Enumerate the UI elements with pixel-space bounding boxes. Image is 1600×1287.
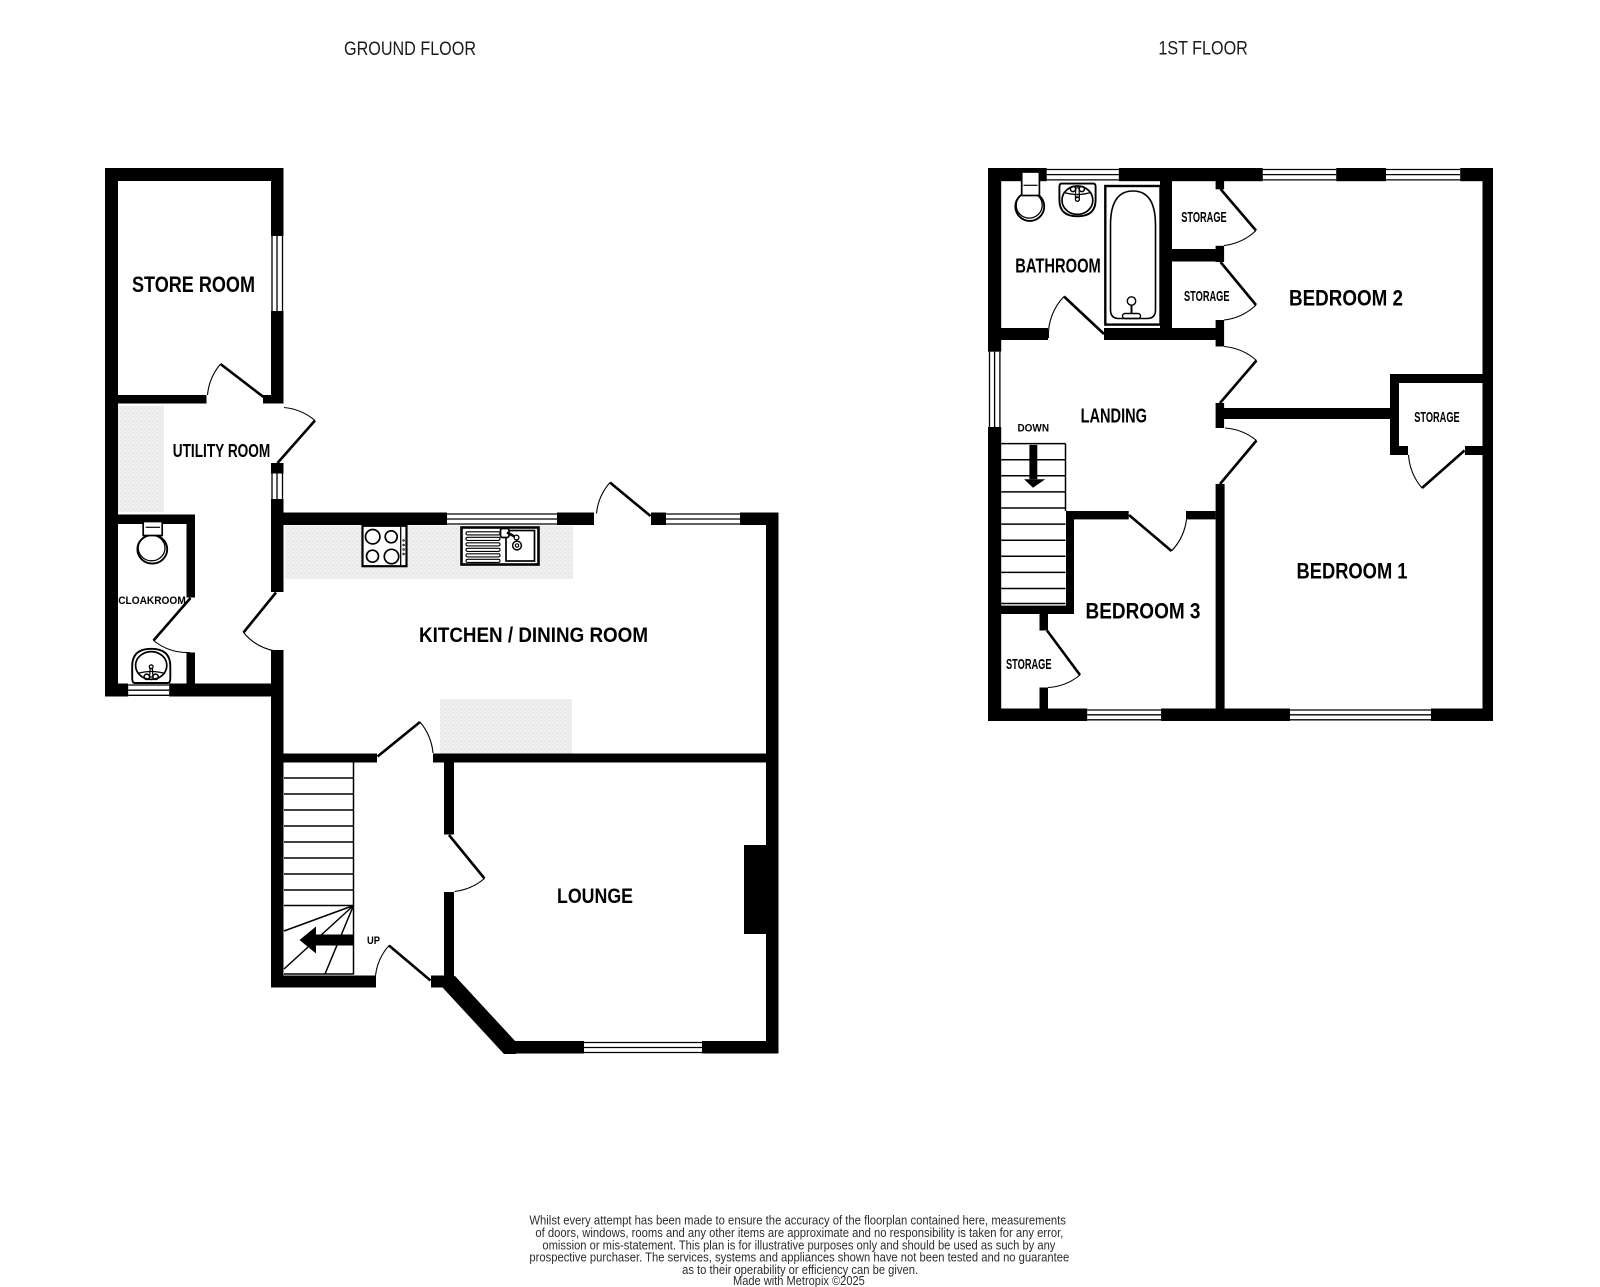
svg-text:CLOAKROOM: CLOAKROOM (118, 595, 186, 607)
svg-text:1ST FLOOR: 1ST FLOOR (1158, 38, 1247, 60)
svg-text:STORAGE: STORAGE (1414, 409, 1460, 426)
svg-text:KITCHEN / DINING ROOM: KITCHEN / DINING ROOM (419, 624, 648, 647)
svg-text:STORAGE: STORAGE (1184, 288, 1230, 305)
svg-text:LOUNGE: LOUNGE (557, 885, 633, 908)
svg-text:STORE ROOM: STORE ROOM (132, 272, 255, 297)
svg-text:BEDROOM 2: BEDROOM 2 (1289, 286, 1403, 311)
svg-text:DOWN: DOWN (1018, 423, 1050, 435)
svg-text:BATHROOM: BATHROOM (1015, 256, 1101, 278)
svg-text:Made with Metropix ©2025: Made with Metropix ©2025 (733, 1274, 865, 1287)
svg-text:STORAGE: STORAGE (1006, 656, 1052, 673)
svg-text:GROUND FLOOR: GROUND FLOOR (344, 38, 476, 60)
svg-text:BEDROOM 3: BEDROOM 3 (1086, 599, 1201, 624)
svg-text:LANDING: LANDING (1081, 406, 1147, 428)
svg-text:BEDROOM 1: BEDROOM 1 (1297, 559, 1408, 584)
svg-text:STORAGE: STORAGE (1181, 209, 1227, 226)
svg-text:UP: UP (367, 935, 380, 947)
svg-text:UTILITY ROOM: UTILITY ROOM (173, 441, 271, 461)
